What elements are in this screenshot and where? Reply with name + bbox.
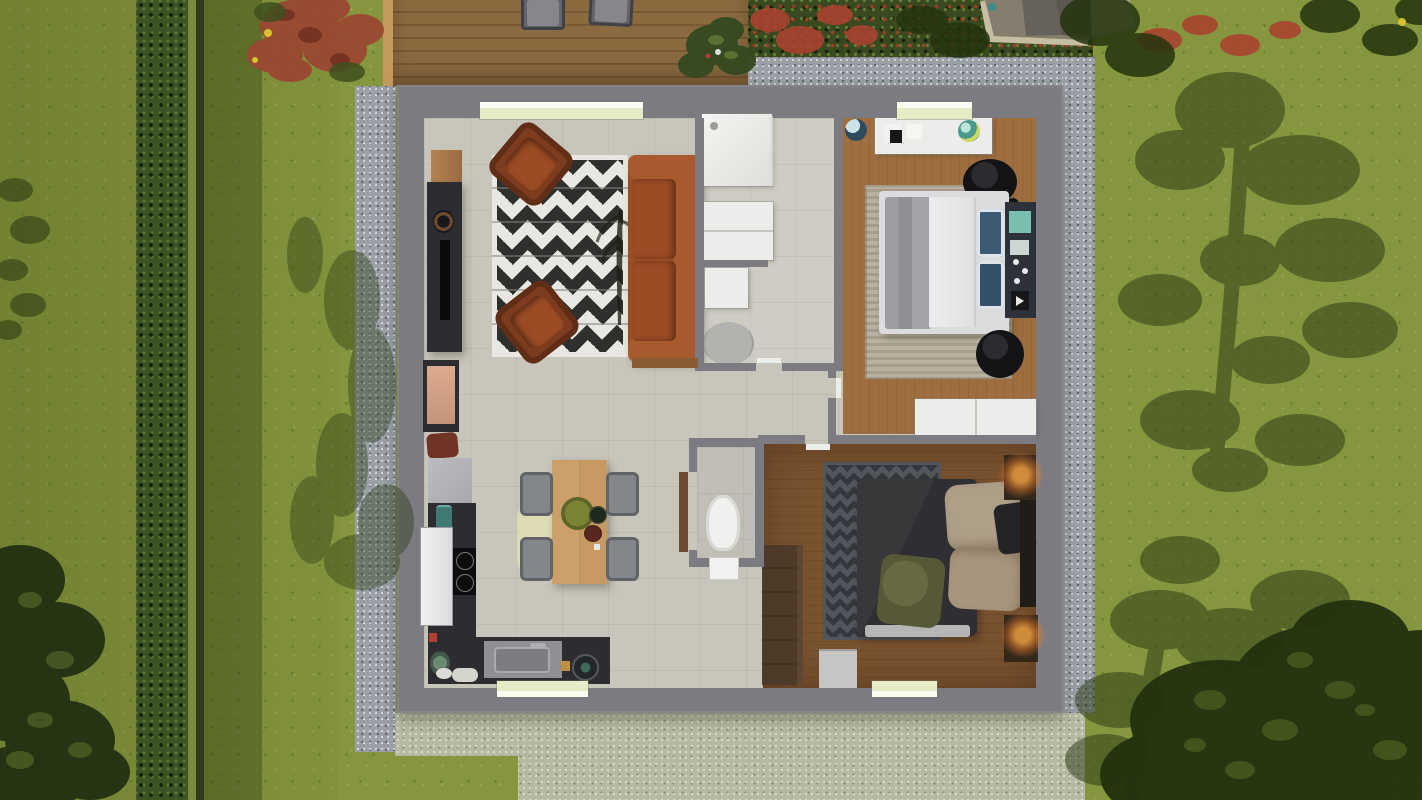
sofa-cushion-2	[632, 261, 676, 341]
lounger-pad	[594, 0, 627, 23]
sink-basin	[494, 647, 550, 673]
brown-bowl	[584, 525, 602, 542]
wall-wc-east	[755, 447, 764, 558]
wood-deck	[393, 0, 748, 86]
deck-edge-board	[383, 0, 393, 86]
lawn-southeast	[1085, 713, 1422, 800]
fridge	[421, 528, 452, 625]
bathroom-cabinet	[705, 268, 748, 308]
wall-bathroom-south-b	[782, 363, 843, 371]
ball-stool	[845, 119, 867, 141]
record-player	[433, 210, 454, 233]
dining-chair-se	[606, 537, 639, 581]
hedge-shadow	[204, 0, 262, 800]
round-pouf-south	[976, 330, 1024, 378]
plate-small	[436, 668, 452, 679]
dining-chair-ne	[606, 472, 639, 516]
dishwasher	[428, 458, 472, 504]
bedroom2-dim-overlay	[763, 444, 1036, 688]
kitchen-window	[497, 681, 588, 697]
bed1-navy-pillow-2	[977, 261, 1004, 309]
bathroom-round-rug	[703, 322, 754, 365]
headboard-deco-dot-2	[1022, 268, 1028, 274]
wall-wc-west-a	[689, 447, 697, 472]
burner-1	[456, 552, 474, 570]
wc-door-leaf	[679, 472, 688, 552]
dresser-seam	[975, 399, 977, 436]
wood-console	[632, 358, 698, 368]
living-room-window	[480, 102, 643, 119]
globe	[958, 120, 980, 142]
red-item	[429, 633, 437, 642]
wall-bedroom2-north-b	[830, 435, 1036, 444]
wall-bathroom-bedroom1	[834, 118, 843, 371]
wall-wc-west-b	[689, 550, 697, 558]
shower-drain	[710, 122, 718, 130]
wall-bedroom2-north-a	[758, 435, 805, 444]
wall-living-bathroom	[695, 118, 704, 371]
bedroom2-door-leaf	[806, 444, 830, 450]
sofa-cushion-1	[632, 179, 676, 259]
gravel-border-top	[748, 57, 1093, 87]
bedroom1-window	[897, 102, 972, 119]
armchair-seat	[501, 134, 560, 193]
bed1-navy-pillow-1	[977, 209, 1004, 257]
wall-wc-north	[689, 438, 764, 447]
burner-2	[456, 574, 474, 592]
dining-chair-nw	[520, 472, 553, 516]
vanity-divider	[703, 230, 773, 232]
gravel-border-left	[355, 86, 396, 752]
headboard-deco-dot-3	[1014, 278, 1020, 284]
compass-burner	[572, 654, 599, 681]
lounger-pad	[527, 0, 559, 26]
bedroom1-door-mark	[836, 378, 841, 398]
lawn-notch-southwest	[338, 756, 518, 800]
headboard-deco-teal	[1009, 211, 1031, 233]
tv	[440, 240, 450, 320]
bathroom-half-wall	[703, 260, 768, 267]
fence-line	[196, 0, 204, 800]
wall-desk-top	[427, 366, 455, 424]
armchair-seat	[508, 293, 567, 352]
bathroom-door-mark	[757, 358, 781, 363]
headboard-deco-art-glyph	[1016, 296, 1024, 306]
bed1-gray-blanket	[885, 197, 930, 329]
headboard-deco-frame	[1010, 240, 1029, 255]
yellow-item	[561, 661, 570, 671]
canopy-tent	[980, 0, 1150, 50]
bedroom2-window	[872, 681, 937, 697]
toilet-cistern	[710, 558, 738, 579]
dark-bowl	[589, 506, 607, 524]
gravel-border-right	[1063, 57, 1095, 715]
toilet-bowl	[706, 495, 740, 551]
headboard-deco-dot-1	[1013, 259, 1019, 265]
hedge-row	[136, 0, 188, 800]
sun-lounger-1	[521, 0, 565, 30]
bed1-white-duvet	[929, 197, 976, 327]
papers	[905, 123, 922, 139]
media-wood-shelf	[431, 150, 462, 182]
shower-glass-screen	[770, 116, 773, 186]
laptop	[884, 124, 902, 143]
dining-chair-sw	[520, 537, 553, 581]
floorplan-render	[0, 0, 1422, 800]
desk-chair	[426, 432, 459, 460]
wall-hall-bedroom1-a	[828, 371, 836, 378]
wall-bathroom-south-a	[695, 363, 756, 371]
faucet	[530, 643, 546, 648]
sun-lounger-2	[588, 0, 634, 27]
small-white-item	[594, 544, 600, 550]
plate-large	[452, 668, 478, 682]
